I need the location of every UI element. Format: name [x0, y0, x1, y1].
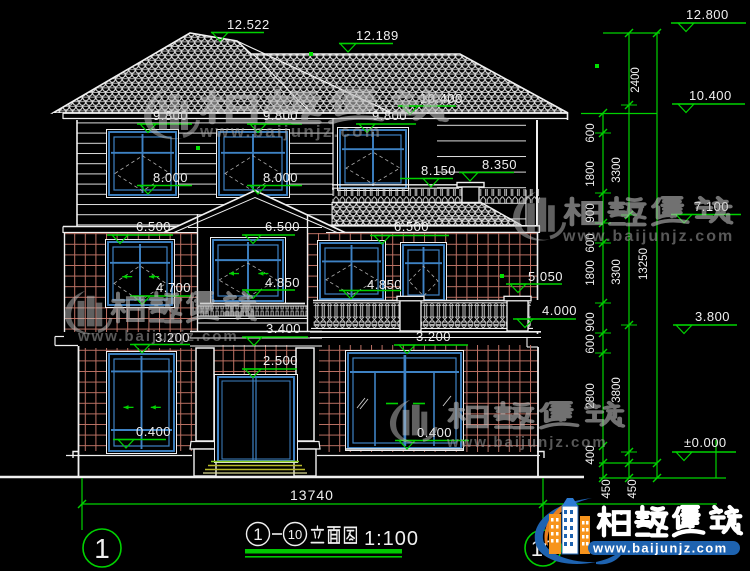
- svg-text:3.200: 3.200: [416, 329, 451, 344]
- svg-text:5.050: 5.050: [528, 269, 563, 284]
- svg-text:www.baijunjz.com: www.baijunjz.com: [77, 328, 239, 345]
- svg-text:6.500: 6.500: [394, 219, 429, 234]
- svg-text:450: 450: [627, 479, 639, 498]
- svg-text:4.700: 4.700: [156, 280, 191, 295]
- svg-text:1: 1: [94, 533, 110, 564]
- svg-text:600: 600: [585, 123, 597, 142]
- svg-text:3300: 3300: [611, 259, 623, 285]
- svg-text:10.400: 10.400: [689, 88, 732, 103]
- svg-text:3.400: 3.400: [266, 321, 301, 336]
- svg-text:1: 1: [253, 525, 262, 544]
- svg-text:4.850: 4.850: [265, 275, 300, 290]
- svg-text:www.baijunjz.com: www.baijunjz.com: [562, 228, 734, 245]
- svg-text:0.400: 0.400: [136, 424, 171, 439]
- svg-text:900: 900: [585, 312, 597, 331]
- svg-text:1:100: 1:100: [364, 528, 419, 550]
- svg-text:450: 450: [601, 479, 613, 498]
- svg-text:6.500: 6.500: [136, 219, 171, 234]
- svg-text:3.800: 3.800: [695, 309, 730, 324]
- svg-text:600: 600: [585, 334, 597, 353]
- svg-text:4.850: 4.850: [367, 277, 402, 292]
- svg-text:6.500: 6.500: [265, 219, 300, 234]
- svg-text:13740: 13740: [290, 487, 334, 503]
- svg-text:1800: 1800: [585, 161, 597, 187]
- svg-text:2.500: 2.500: [263, 353, 298, 368]
- svg-text:3300: 3300: [611, 157, 623, 183]
- svg-text:10: 10: [288, 527, 302, 542]
- svg-text:8.150: 8.150: [421, 163, 456, 178]
- svg-text:8.000: 8.000: [263, 170, 298, 185]
- svg-text:4.000: 4.000: [542, 303, 577, 318]
- svg-text:1800: 1800: [585, 260, 597, 286]
- svg-text:12.189: 12.189: [356, 28, 399, 43]
- svg-text:8.000: 8.000: [153, 170, 188, 185]
- svg-text:12.800: 12.800: [686, 7, 729, 22]
- svg-text:13250: 13250: [638, 248, 650, 280]
- svg-text:±0.000: ±0.000: [684, 435, 727, 450]
- svg-text:8.350: 8.350: [482, 157, 517, 172]
- svg-text:3800: 3800: [611, 377, 623, 403]
- svg-text:12.522: 12.522: [227, 17, 270, 32]
- svg-text:www.baijunjz.com: www.baijunjz.com: [592, 541, 728, 556]
- svg-text:2400: 2400: [630, 67, 642, 93]
- svg-text:www.baijunjz.com: www.baijunjz.com: [446, 434, 608, 451]
- svg-text:www.baijunjz.com: www.baijunjz.com: [199, 122, 382, 141]
